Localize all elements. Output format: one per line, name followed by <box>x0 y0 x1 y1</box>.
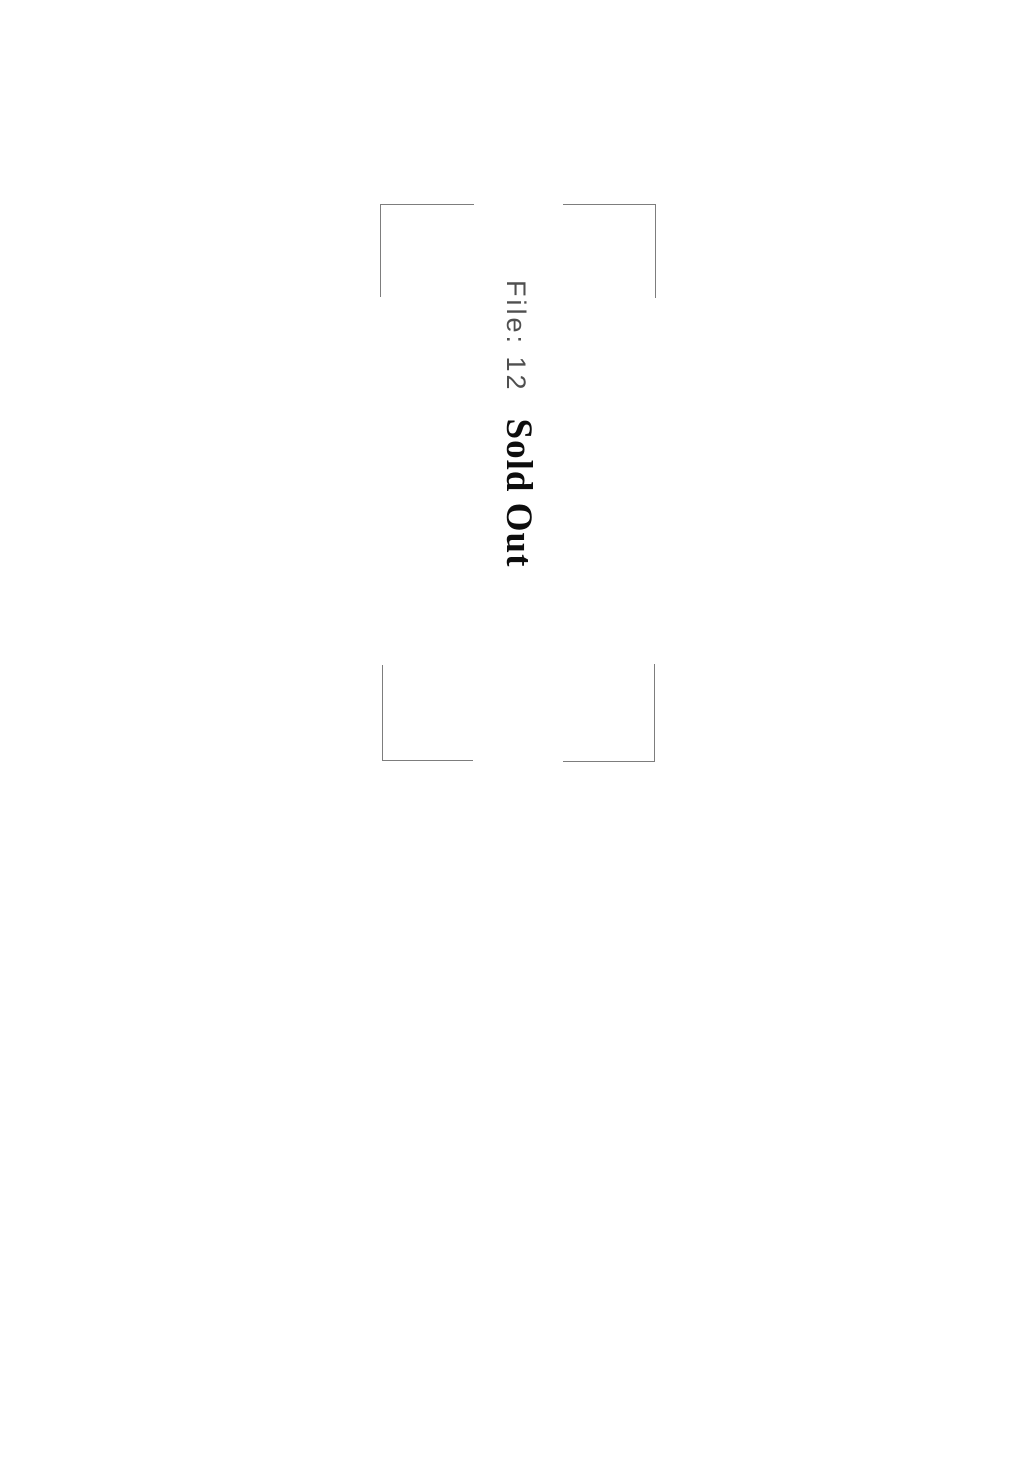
status-label: Sold Out <box>498 419 539 568</box>
frame-corner-bottom-left <box>382 665 473 761</box>
frame-corner-top-right <box>563 204 656 298</box>
frame-corner-bottom-right <box>563 664 655 762</box>
rotated-title-line: File: 12Sold Out <box>494 280 542 560</box>
file-number-label: File: 12 <box>501 280 531 393</box>
scanned-page: File: 12Sold Out <box>0 0 1024 1471</box>
frame-corner-top-left <box>380 204 474 297</box>
